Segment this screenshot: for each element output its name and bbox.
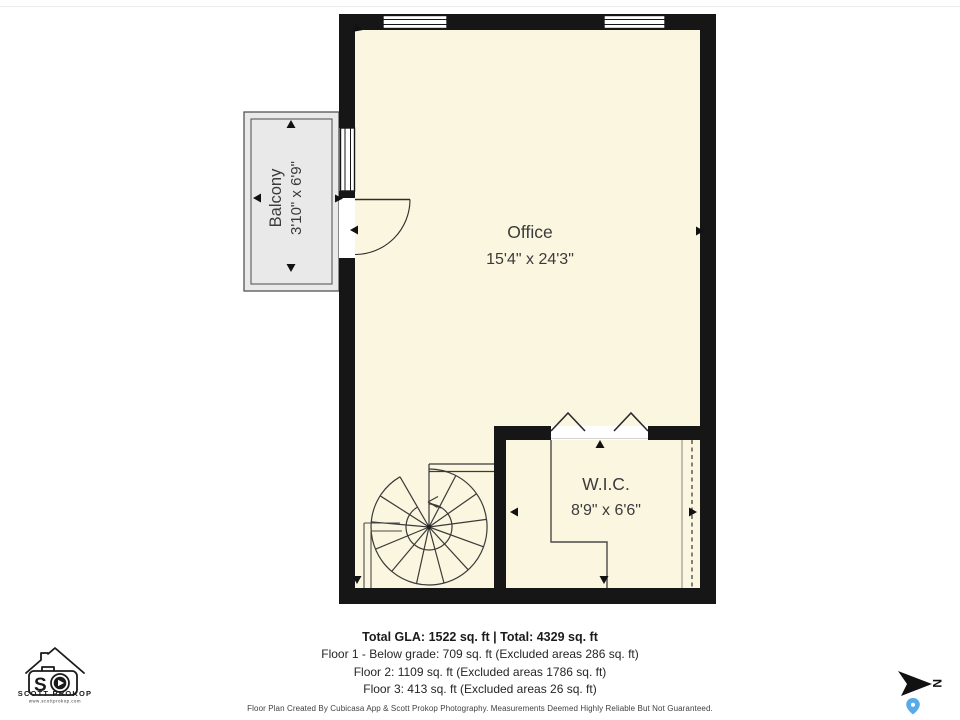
- floor-plan-canvas: Office 15'4" x 24'3" W.I.C. 8'9" x 6'6" …: [0, 0, 960, 720]
- window-top-right: [604, 16, 665, 29]
- wall-left-mid: [339, 191, 355, 198]
- floor1-area-line: Floor 1 - Below grade: 709 sq. ft (Exclu…: [0, 646, 960, 664]
- wall-wic-left: [494, 426, 506, 588]
- floor3-area-line: Floor 3: 413 sq. ft (Excluded areas 26 s…: [0, 681, 960, 699]
- wic-dimensions: 8'9" x 6'6": [571, 502, 641, 519]
- stair-center-post: [427, 525, 431, 529]
- wic-label: W.I.C.: [582, 474, 630, 494]
- balcony-label: Balcony: [267, 168, 285, 227]
- window-balcony: [341, 128, 355, 191]
- wall-right: [700, 14, 716, 604]
- balcony-dimensions: 3'10" x 6'9": [288, 161, 305, 235]
- disclaimer-text: Floor Plan Created By Cubicasa App & Sco…: [0, 704, 960, 713]
- door-opening: [339, 198, 355, 258]
- total-gla-line: Total GLA: 1522 sq. ft | Total: 4329 sq.…: [0, 628, 960, 646]
- room-floor: [355, 30, 700, 588]
- office-label: Office: [507, 222, 552, 242]
- area-summary: Total GLA: 1522 sq. ft | Total: 4329 sq.…: [0, 628, 960, 713]
- wall-left-lower: [339, 258, 355, 604]
- wic-opening: [551, 426, 648, 440]
- floor2-area-line: Floor 2: 1109 sq. ft (Excluded areas 178…: [0, 664, 960, 682]
- wall-wic-top-right: [648, 426, 700, 440]
- window-top-left: [383, 16, 447, 29]
- wall-bottom: [339, 588, 716, 604]
- office-dimensions: 15'4" x 24'3": [486, 251, 574, 268]
